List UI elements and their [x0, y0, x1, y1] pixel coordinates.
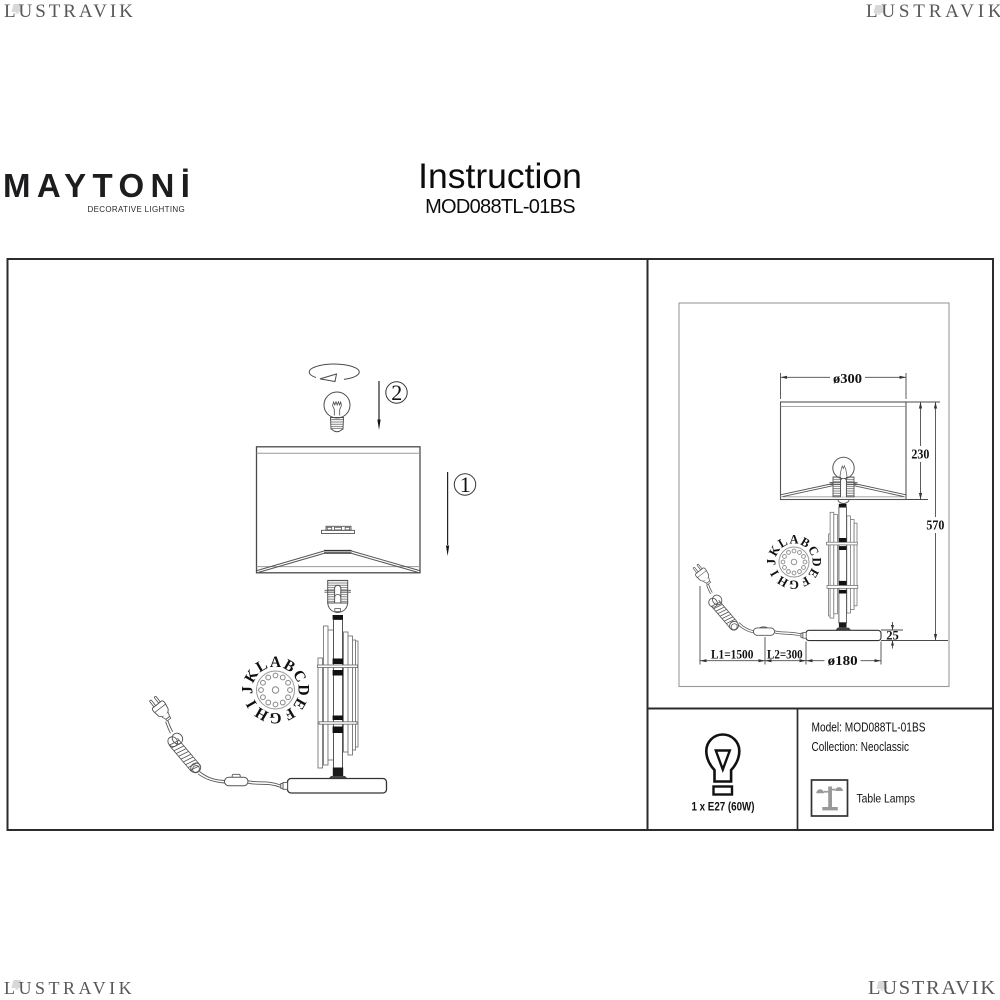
svg-text:D: D — [295, 684, 312, 695]
svg-text:2: 2 — [391, 380, 402, 405]
svg-text:1 x E27 (60W): 1 x E27 (60W) — [692, 800, 755, 814]
svg-text:A: A — [270, 654, 282, 671]
svg-text:L1=1500: L1=1500 — [711, 646, 754, 661]
svg-text:ø300: ø300 — [833, 372, 862, 387]
svg-text:H: H — [252, 703, 271, 724]
svg-text:1: 1 — [460, 472, 471, 497]
svg-text:25: 25 — [886, 627, 899, 642]
svg-text:J: J — [240, 686, 257, 694]
svg-text:J: J — [765, 559, 779, 565]
svg-text:ø180: ø180 — [828, 654, 858, 669]
svg-text:230: 230 — [911, 447, 929, 462]
svg-text:Model: MOD088TL-01BS: Model: MOD088TL-01BS — [812, 721, 926, 735]
svg-text:570: 570 — [926, 517, 944, 532]
svg-text:I: I — [767, 568, 782, 579]
svg-text:L2=300: L2=300 — [767, 646, 803, 661]
svg-text:A: A — [789, 533, 798, 547]
svg-text:D: D — [810, 557, 824, 566]
svg-text:Table Lamps: Table Lamps — [857, 792, 916, 806]
svg-text:Collection: Neoclassic: Collection: Neoclassic — [812, 740, 910, 754]
svg-text:G: G — [269, 709, 281, 726]
